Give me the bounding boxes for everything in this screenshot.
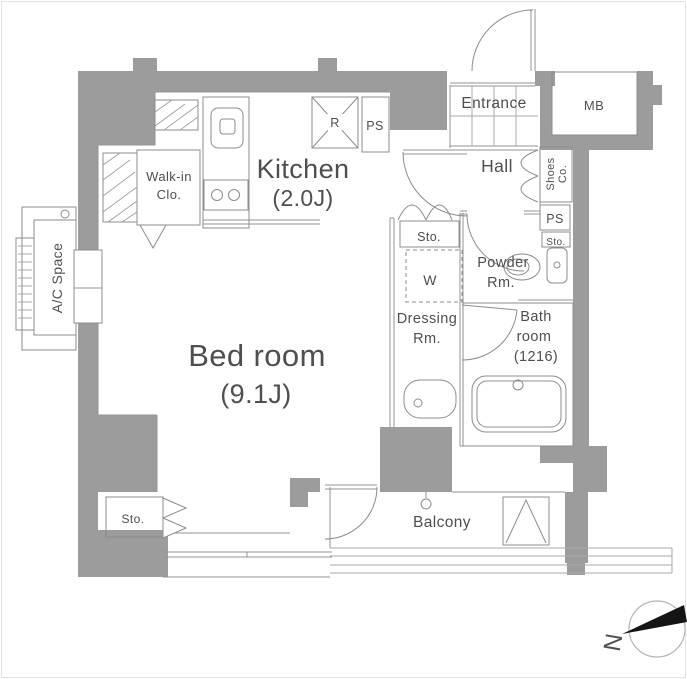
wall-segment — [573, 446, 607, 492]
balcony-door-leaf — [325, 485, 377, 489]
wall-line — [460, 300, 573, 446]
floor-plan: N Kitchen (2.0J) Bed room (9.1J) Walk-in… — [0, 0, 687, 679]
wall-segment — [540, 135, 652, 150]
stove-burner — [212, 190, 223, 201]
bathtub — [472, 376, 566, 432]
walkin-hatch-left — [103, 153, 137, 222]
bath-door-arc — [462, 310, 517, 360]
bath-label-1: Bath — [520, 309, 551, 325]
bedroom-storage-door — [163, 518, 186, 538]
bath-label-2: room — [517, 329, 552, 345]
wall-segment — [651, 85, 662, 105]
bathroom-outline — [463, 303, 573, 446]
evacuation-hatch — [503, 497, 549, 545]
wall-line — [460, 211, 540, 214]
wall-segment — [133, 58, 157, 71]
wall-segment — [318, 58, 337, 71]
kitchen-label: Kitchen — [257, 154, 350, 184]
bedroom-window — [163, 533, 332, 577]
sto-hall-label: Sto. — [417, 230, 441, 244]
shoes-label-1: Shoes — [545, 157, 557, 190]
stove — [204, 180, 248, 210]
wall-segment — [390, 71, 447, 130]
entrance-door-leaf — [531, 9, 535, 71]
wall-segment — [567, 558, 585, 575]
dressing-label-2: Rm. — [413, 331, 441, 347]
refrigerator-label: R — [330, 116, 339, 130]
ac-window — [74, 250, 102, 323]
storage-bifold-doors — [398, 205, 452, 220]
bedroom-storage-door — [163, 498, 186, 518]
ps-kitchen-label: PS — [366, 119, 383, 133]
dressing-sink — [404, 380, 456, 418]
walkin-label-2: Clo. — [157, 187, 182, 202]
shoes-label-2: Co. — [557, 165, 569, 183]
wall-segment — [78, 492, 98, 530]
ps-right-label: PS — [546, 212, 563, 226]
powder-label-1: Powder — [477, 255, 529, 271]
entrance-door-arc — [472, 10, 533, 71]
compass-north-label: N — [597, 631, 627, 653]
powder-label-2: Rm. — [487, 275, 515, 291]
bedroom-size: (9.1J) — [220, 379, 291, 409]
bedroom-label: Bed room — [188, 338, 326, 373]
wall-segment — [78, 71, 390, 92]
wall-segment — [290, 478, 320, 507]
balcony-door-arc — [325, 487, 377, 539]
mb-label: MB — [584, 98, 604, 113]
wall-segment — [380, 427, 452, 492]
bath-label-3: (1216) — [514, 349, 558, 365]
wall-segment — [78, 415, 157, 492]
floor-plan-page: N Kitchen (2.0J) Bed room (9.1J) Walk-in… — [0, 0, 687, 679]
washer-label: W — [423, 272, 437, 288]
wall-segment — [573, 150, 589, 446]
entrance-label: Entrance — [461, 95, 526, 112]
walkin-door — [140, 225, 166, 248]
powder-basin — [547, 248, 567, 283]
kitchen-sink-basin — [220, 119, 235, 134]
ac-space-label: A/C Space — [49, 243, 65, 314]
bathtub-inner — [477, 381, 561, 427]
kitchen-size: (2.0J) — [272, 185, 333, 211]
laundry-pole-holder — [421, 492, 431, 509]
shoes-bifold-doors — [521, 150, 538, 202]
balcony-label: Balcony — [413, 514, 471, 531]
powder-basin-drain — [554, 262, 560, 268]
walkin-hatch-top — [155, 100, 198, 130]
sto-powder-label: Sto. — [546, 237, 565, 248]
dressing-sink-drain — [414, 399, 422, 407]
wall-line — [390, 218, 394, 427]
kitchen-sink — [211, 108, 243, 148]
wall-segment — [78, 145, 98, 250]
balcony-railing — [330, 548, 672, 573]
wall-segment — [78, 323, 98, 415]
dressing-label-1: Dressing — [397, 311, 457, 327]
ac-space-unit — [16, 207, 76, 350]
kitchen-counter-return — [203, 220, 320, 224]
hall-label: Hall — [481, 156, 513, 176]
wall-segment — [565, 492, 588, 563]
kitchen-counter — [203, 97, 249, 228]
compass-icon: N — [597, 601, 687, 657]
stove-burner — [229, 190, 240, 201]
hall-door-leaf — [403, 150, 467, 154]
sto-bedroom-label: Sto. — [122, 512, 145, 526]
bath-door-leaf — [462, 305, 517, 310]
walkin-label-1: Walk-in — [146, 169, 192, 184]
